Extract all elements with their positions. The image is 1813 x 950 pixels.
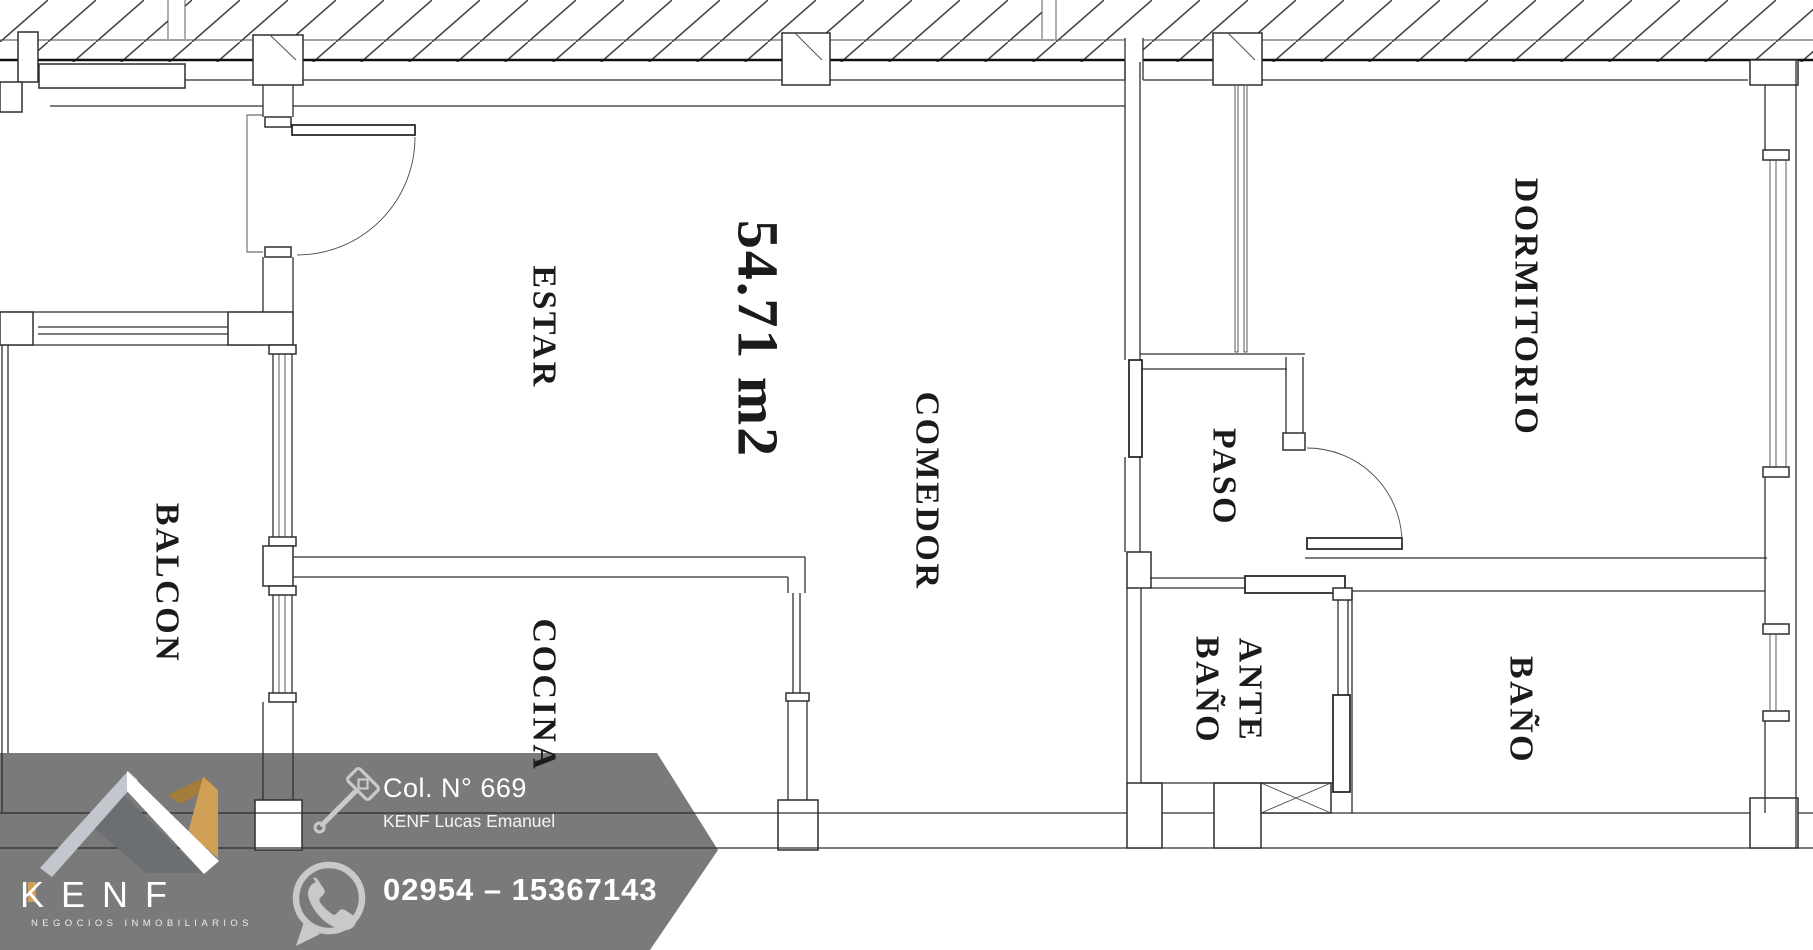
room-label-bano: BAÑO bbox=[1499, 656, 1542, 764]
right-exterior-wall bbox=[1763, 60, 1796, 848]
phone-number-text: 02954 – 15367143 bbox=[383, 872, 658, 908]
comedor-paso-wall bbox=[1125, 62, 1151, 588]
room-label-estar: ESTAR bbox=[522, 265, 565, 388]
room-label-cocina: COCINA bbox=[522, 619, 565, 772]
agent-name-text: KENF Lucas Emanuel bbox=[383, 811, 555, 832]
room-label-paso: PASO bbox=[1202, 428, 1245, 526]
brand-tagline-text: NEGOCIOS INMOBILIARIOS bbox=[31, 918, 253, 929]
room-label-antebano: ANTE BAÑO bbox=[1186, 636, 1271, 744]
dormitorio-door bbox=[1305, 448, 1767, 591]
room-label-balcon: BALCON bbox=[145, 503, 188, 663]
room-label-dormitorio: DORMITORIO bbox=[1504, 178, 1547, 437]
balcony-top-window bbox=[0, 312, 293, 345]
top-left-terrace bbox=[0, 64, 185, 813]
area-label: 54.71 m2 bbox=[721, 220, 794, 458]
credential-text: Col. N° 669 bbox=[383, 773, 527, 804]
paso-walls bbox=[1140, 85, 1305, 450]
floorplan-page: ESTAR 54.71 m2 COMEDOR COCINA BALCON PAS… bbox=[0, 0, 1813, 950]
brand-name-text: KENF bbox=[20, 874, 184, 916]
estar-entry-door bbox=[247, 85, 415, 312]
room-label-comedor: COMEDOR bbox=[905, 392, 948, 591]
